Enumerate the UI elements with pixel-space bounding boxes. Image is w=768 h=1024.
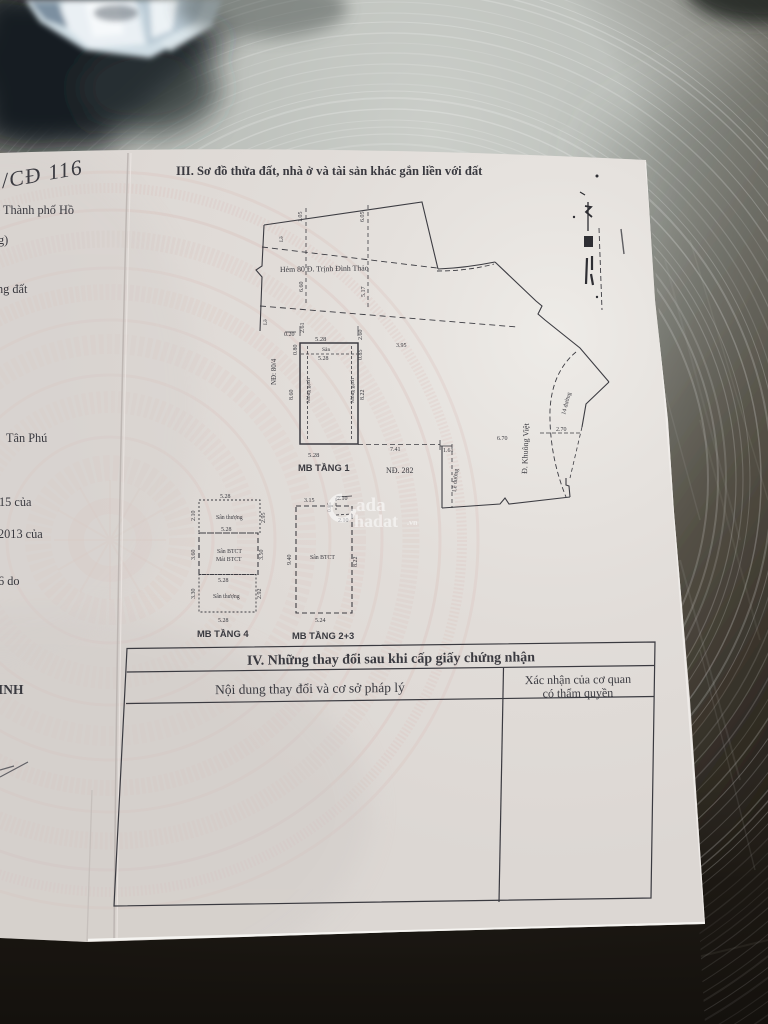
svg-text:5.28: 5.28 — [218, 578, 229, 584]
svg-text:Sân BTCT: Sân BTCT — [310, 555, 335, 561]
svg-text:6.05: 6.05 — [360, 212, 366, 223]
svg-text:2013 của: 2013 của — [0, 527, 43, 541]
svg-text:Móng gạch: Móng gạch — [306, 378, 312, 403]
svg-text:0.80: 0.80 — [293, 345, 299, 356]
svg-text:3.50: 3.50 — [259, 550, 265, 561]
svg-text:g): g) — [0, 233, 8, 247]
svg-text:Lề: Lề — [262, 319, 269, 325]
svg-text:2.61: 2.61 — [300, 323, 306, 334]
svg-text:8.60: 8.60 — [289, 390, 295, 401]
svg-text:2.60: 2.60 — [358, 330, 364, 341]
svg-text:MB TẦNG 2+3: MB TẦNG 2+3 — [292, 630, 354, 641]
svg-text:7.41: 7.41 — [390, 447, 401, 453]
svg-text:INH: INH — [0, 682, 24, 697]
svg-text:Hẻm 80 Đ. Trịnh Đình Thảo: Hẻm 80 Đ. Trịnh Đình Thảo — [280, 263, 369, 274]
svg-text:5.24: 5.24 — [315, 618, 326, 624]
svg-text:5.28: 5.28 — [220, 494, 231, 500]
svg-text:MB TẦNG 4: MB TẦNG 4 — [197, 628, 249, 639]
svg-text:MB TẦNG 1: MB TẦNG 1 — [298, 462, 350, 473]
svg-text:Sân thượng: Sân thượng — [216, 515, 243, 521]
svg-text:5.28: 5.28 — [221, 527, 232, 533]
svg-text:Tân Phú: Tân Phú — [6, 431, 47, 445]
svg-text:1.61: 1.61 — [443, 448, 454, 454]
svg-text:8.22: 8.22 — [360, 390, 366, 401]
svg-text:8.22: 8.22 — [353, 557, 359, 568]
svg-text:0.20: 0.20 — [284, 332, 295, 338]
svg-text:Sân thượng: Sân thượng — [213, 594, 240, 600]
svg-text:5.28: 5.28 — [318, 356, 329, 362]
svg-text:6 do: 6 do — [0, 574, 20, 588]
svg-text:6.60: 6.60 — [299, 282, 305, 293]
svg-text:NĐ: 80/4: NĐ: 80/4 — [270, 358, 278, 385]
svg-text:9.40: 9.40 — [287, 555, 293, 566]
svg-text:3.60: 3.60 — [191, 550, 197, 561]
svg-text:15 của: 15 của — [0, 495, 32, 509]
svg-text:3.95: 3.95 — [396, 343, 407, 349]
svg-text:Mái BTCT: Mái BTCT — [216, 557, 242, 563]
svg-text:Sân: Sân — [322, 347, 331, 353]
svg-text:5.17: 5.17 — [361, 287, 367, 298]
svg-text:Móng gạch: Móng gạch — [350, 378, 356, 403]
svg-text:Thành phố Hồ: Thành phố Hồ — [3, 203, 74, 217]
svg-text:6.70: 6.70 — [497, 436, 508, 442]
svg-text:2.92: 2.92 — [257, 589, 263, 600]
svg-text:Nội dung thay đổi và cơ sở phá: Nội dung thay đổi và cơ sở pháp lý — [215, 680, 405, 697]
svg-text:III. Sơ đồ thửa đất, nhà ở và: III. Sơ đồ thửa đất, nhà ở và tài sản kh… — [176, 164, 483, 178]
svg-text:2.70: 2.70 — [556, 427, 567, 433]
svg-text:1.05: 1.05 — [298, 212, 304, 223]
svg-text:Đ. Khuông Việt: Đ. Khuông Việt — [520, 422, 531, 474]
svg-text:ng đất: ng đất — [0, 282, 28, 296]
svg-text:2.95: 2.95 — [261, 513, 267, 524]
svg-text:Lề: Lề — [278, 236, 285, 242]
svg-text:0.85: 0.85 — [358, 350, 364, 361]
svg-text:NĐ. 282: NĐ. 282 — [386, 466, 414, 475]
svg-text:hadat: hadat — [354, 511, 398, 531]
svg-text:5.28: 5.28 — [308, 452, 319, 459]
svg-text:3.30: 3.30 — [191, 589, 197, 600]
svg-text:2.10: 2.10 — [191, 511, 197, 522]
svg-text:Xác nhận của cơ quan: Xác nhận của cơ quan — [525, 672, 631, 687]
svg-text:5.28: 5.28 — [218, 618, 229, 624]
svg-text:Sân BTCT: Sân BTCT — [217, 549, 242, 555]
svg-text:3.15: 3.15 — [304, 498, 315, 504]
svg-text:5.28: 5.28 — [315, 336, 326, 343]
svg-text:có thẩm quyền: có thẩm quyền — [543, 686, 614, 701]
svg-text:.vn: .vn — [407, 518, 418, 527]
